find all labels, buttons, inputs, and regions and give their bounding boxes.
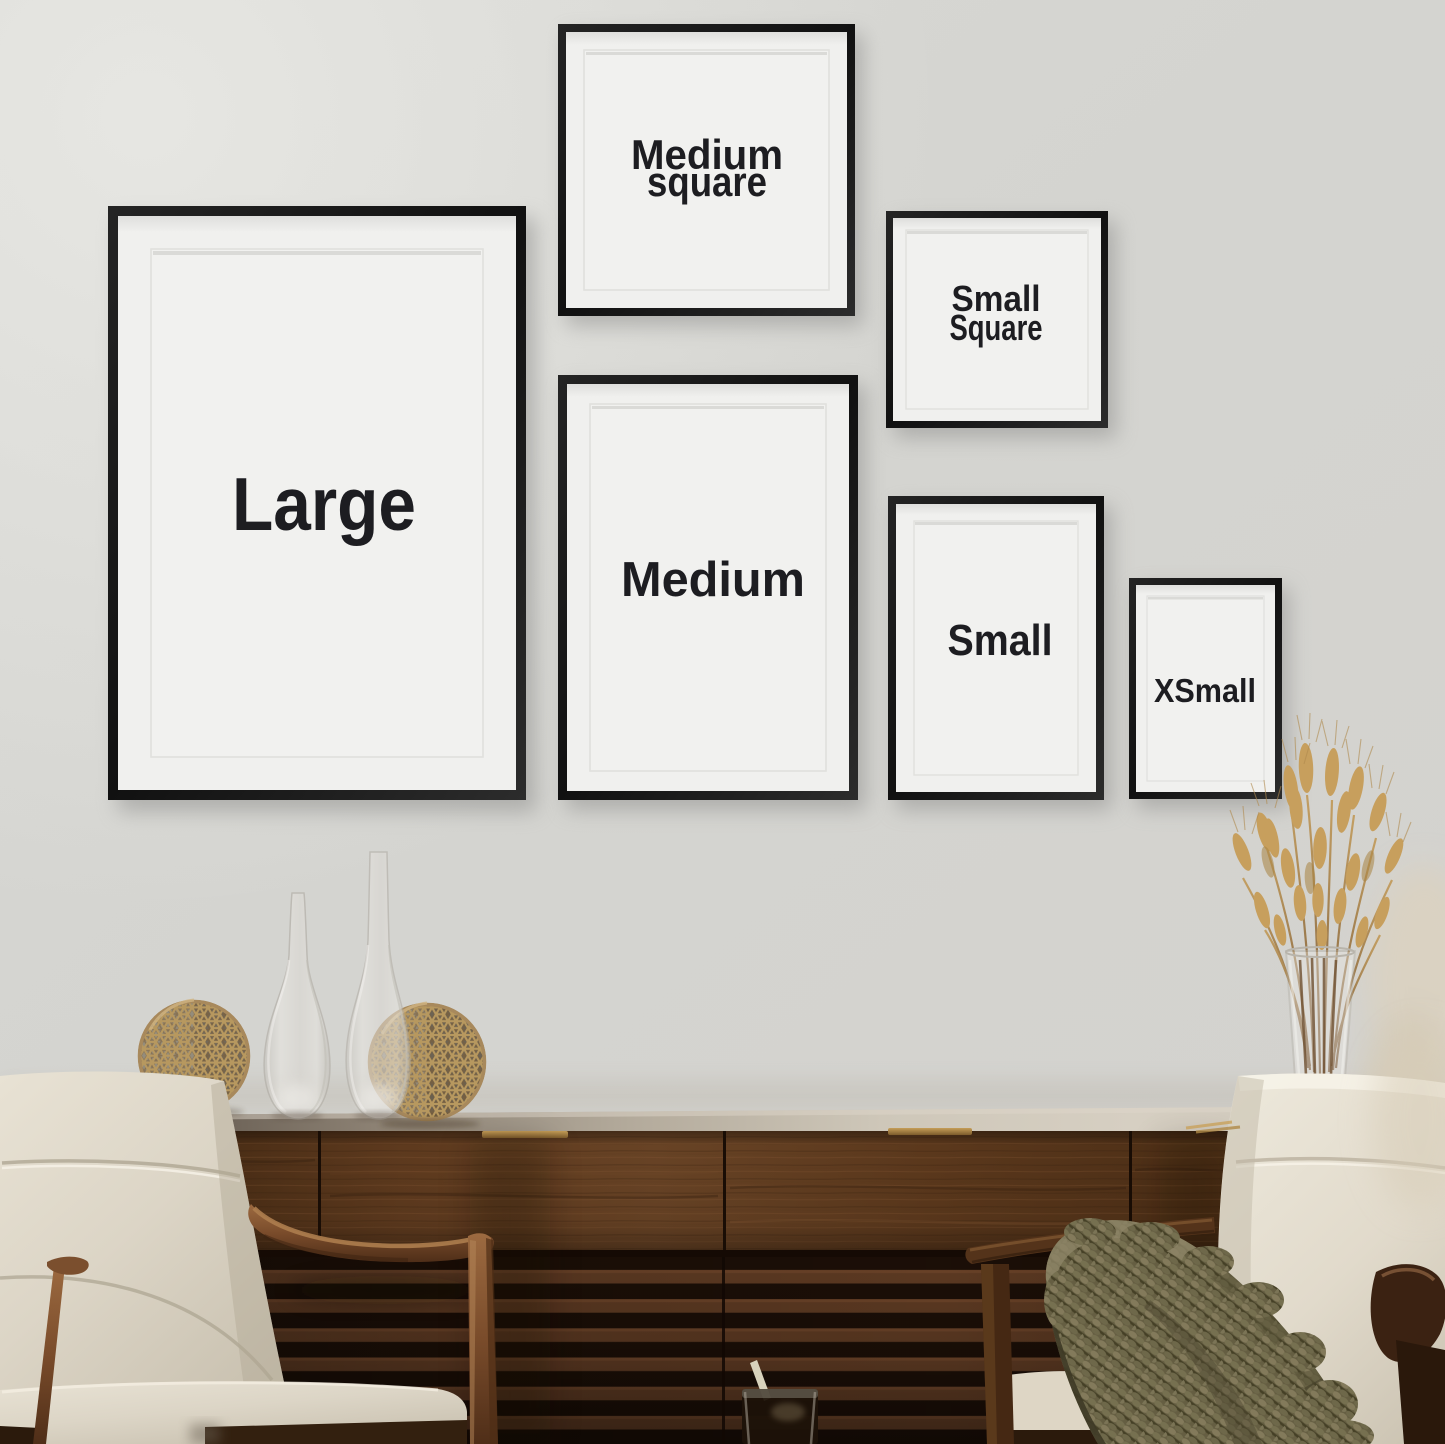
- svg-text:XSmall: XSmall: [1154, 672, 1256, 709]
- svg-text:Large: Large: [232, 462, 416, 546]
- svg-text:Small: Small: [948, 616, 1053, 665]
- svg-text:Medium: Medium: [621, 553, 805, 607]
- svg-text:Square: Square: [950, 307, 1043, 348]
- svg-text:square: square: [647, 158, 767, 205]
